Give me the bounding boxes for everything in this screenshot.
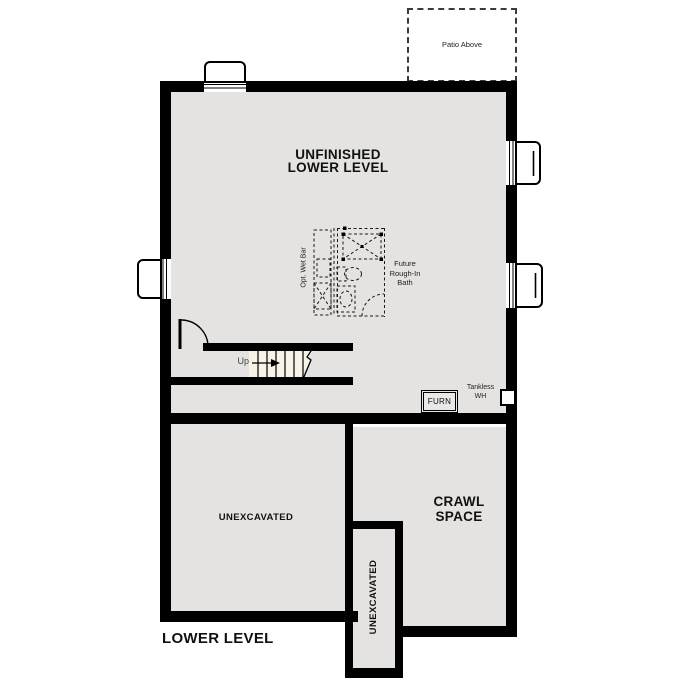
future-bath-line2: Rough-In bbox=[386, 269, 424, 279]
window-right-lower-icon bbox=[515, 263, 543, 308]
crawl-space-floor-lower bbox=[403, 521, 506, 626]
tankless-wh-box bbox=[500, 389, 516, 406]
patio-above-area: Patio Above bbox=[407, 8, 517, 82]
crawl-space-line1: CRAWL bbox=[409, 494, 509, 509]
future-bath-label: Future Rough-In Bath bbox=[386, 259, 424, 288]
unexcavated-left-label: UNEXCAVATED bbox=[186, 512, 326, 523]
crawl-space-label: CRAWL SPACE bbox=[409, 494, 509, 524]
tankless-line1: Tankless bbox=[462, 384, 499, 393]
wall-crawl-bottom bbox=[395, 626, 517, 637]
floor-plan: Patio Above bbox=[0, 0, 687, 687]
main-room-floor bbox=[171, 92, 506, 413]
wall-strip-right bbox=[395, 521, 403, 678]
tankless-wh-label: Tankless WH bbox=[462, 384, 499, 401]
future-bath-line1: Future bbox=[386, 259, 424, 269]
wet-bar-label: Opt. Wet Bar bbox=[301, 218, 312, 318]
stairs-up-label: Up bbox=[231, 356, 249, 366]
future-bath-line3: Bath bbox=[386, 278, 424, 288]
wall-strip-bottom bbox=[345, 668, 403, 678]
window-right-upper-icon bbox=[515, 141, 541, 185]
wall-left bbox=[160, 81, 171, 622]
unexcavated-strip-label: UNEXCAVATED bbox=[368, 547, 380, 647]
main-room-label-line2: LOWER LEVEL bbox=[238, 161, 438, 174]
patio-label: Patio Above bbox=[409, 40, 515, 49]
wall-unexcavated-bottom bbox=[160, 611, 358, 622]
furnace-label: FURN bbox=[428, 397, 451, 406]
wall-stair-top bbox=[203, 343, 353, 351]
tankless-line2: WH bbox=[462, 393, 499, 402]
window-top-icon bbox=[204, 61, 246, 83]
crawl-space-line2: SPACE bbox=[409, 509, 509, 524]
plan-title: LOWER LEVEL bbox=[162, 630, 274, 647]
wall-divider bbox=[160, 413, 517, 424]
wall-stair-bottom bbox=[160, 377, 353, 385]
wall-mid-vertical bbox=[345, 413, 353, 678]
main-room-label: UNFINISHED LOWER LEVEL bbox=[238, 148, 438, 174]
furnace-box: FURN bbox=[421, 390, 458, 413]
window-left-icon bbox=[137, 259, 162, 299]
